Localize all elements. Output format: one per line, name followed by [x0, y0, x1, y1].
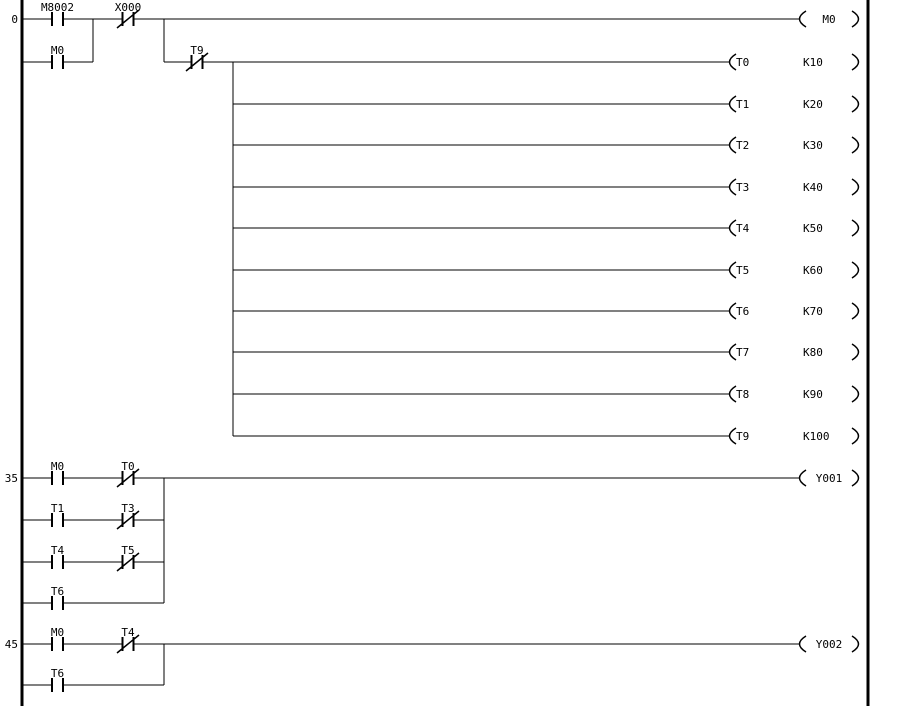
ladder-diagram-view: 0 35 45 M8002 X000 M0 [0, 0, 915, 706]
contact-label: T4 [51, 544, 65, 557]
contact-m0-rung35[interactable]: M0 [51, 460, 64, 485]
contact-label: T1 [51, 502, 64, 515]
contact-x000[interactable]: X000 [115, 1, 142, 28]
contact-t3[interactable]: T3 [117, 502, 139, 529]
coil-close-paren-icon [852, 137, 859, 153]
timer-preset: K30 [803, 139, 823, 152]
timer-preset: K10 [803, 56, 823, 69]
timer-preset: K90 [803, 388, 823, 401]
timer-preset: K80 [803, 346, 823, 359]
timer-coil-t9[interactable]: T9 K100 [730, 428, 859, 444]
coil-close-paren-icon [852, 344, 859, 360]
coil-label: M0 [822, 13, 835, 26]
contact-t6-rung45[interactable]: T6 [51, 667, 64, 692]
timer-name: T2 [736, 139, 749, 152]
contact-label: T4 [121, 626, 135, 639]
coil-close-paren-icon [852, 179, 859, 195]
timer-coil-t4[interactable]: T4 K50 [730, 220, 859, 236]
contact-label: M8002 [41, 1, 74, 14]
contact-m8002[interactable]: M8002 [41, 1, 74, 26]
coil-y001[interactable]: Y001 [800, 470, 859, 486]
coil-label: Y002 [816, 638, 843, 651]
timer-name: T5 [736, 264, 749, 277]
coil-open-paren-icon [800, 11, 807, 27]
coil-open-paren-icon [800, 470, 807, 486]
timer-name: T8 [736, 388, 749, 401]
contact-label: T3 [121, 502, 134, 515]
timer-name: T9 [736, 430, 749, 443]
rung-number-35: 35 [5, 472, 18, 485]
contact-gap [53, 641, 63, 647]
coil-close-paren-icon [852, 303, 859, 319]
coil-close-paren-icon [852, 470, 859, 486]
contact-t0[interactable]: T0 [117, 460, 139, 487]
coil-close-paren-icon [852, 428, 859, 444]
timer-coil-t1[interactable]: T1 K20 [730, 96, 859, 112]
rung-number-45: 45 [5, 638, 18, 651]
timer-name: T3 [736, 181, 749, 194]
timer-coil-t3[interactable]: T3 K40 [730, 179, 859, 195]
timer-coil-t2[interactable]: T2 K30 [730, 137, 859, 153]
timer-preset: K60 [803, 264, 823, 277]
rung-number-0: 0 [11, 13, 18, 26]
contact-gap [53, 682, 63, 688]
timer-preset: K50 [803, 222, 823, 235]
timer-coil-t8[interactable]: T8 K90 [730, 386, 859, 402]
timer-name: T7 [736, 346, 749, 359]
coil-close-paren-icon [852, 636, 859, 652]
coil-close-paren-icon [852, 386, 859, 402]
coil-close-paren-icon [852, 11, 859, 27]
contact-gap [53, 59, 63, 65]
ladder-diagram: 0 35 45 M8002 X000 M0 [0, 0, 915, 706]
timer-coil-t5[interactable]: T5 K60 [730, 262, 859, 278]
contact-t6-rung35[interactable]: T6 [51, 585, 64, 610]
contact-label: T0 [121, 460, 134, 473]
contact-gap [53, 600, 63, 606]
timer-name: T6 [736, 305, 749, 318]
contact-gap [53, 559, 63, 565]
timer-name: T0 [736, 56, 749, 69]
timer-preset: K40 [803, 181, 823, 194]
coil-close-paren-icon [852, 54, 859, 70]
contact-label: M0 [51, 44, 64, 57]
contact-label: T6 [51, 585, 64, 598]
contact-t1[interactable]: T1 [51, 502, 64, 527]
contact-t9[interactable]: T9 [186, 44, 208, 71]
contact-label: T5 [121, 544, 134, 557]
contact-m0-rung0[interactable]: M0 [51, 44, 64, 69]
timer-preset: K70 [803, 305, 823, 318]
contact-gap [53, 16, 63, 22]
timer-name: T4 [736, 222, 750, 235]
contact-t4-rung45[interactable]: T4 [117, 626, 139, 653]
contact-t4-rung35[interactable]: T4 [51, 544, 65, 569]
timer-coil-t0[interactable]: T0 K10 [730, 54, 859, 70]
timer-preset: K20 [803, 98, 823, 111]
timer-preset: K100 [803, 430, 830, 443]
coil-y002[interactable]: Y002 [800, 636, 859, 652]
coil-open-paren-icon [800, 636, 807, 652]
coil-close-paren-icon [852, 262, 859, 278]
coil-label: Y001 [816, 472, 843, 485]
contact-gap [53, 475, 63, 481]
contact-label: T9 [190, 44, 203, 57]
coil-m0[interactable]: M0 [800, 11, 859, 27]
coil-close-paren-icon [852, 220, 859, 236]
timer-coil-t7[interactable]: T7 K80 [730, 344, 859, 360]
contact-label: X000 [115, 1, 142, 14]
contact-label: T6 [51, 667, 64, 680]
timer-coil-t6[interactable]: T6 K70 [730, 303, 859, 319]
contact-label: M0 [51, 626, 64, 639]
contact-m0-rung45[interactable]: M0 [51, 626, 64, 651]
coil-close-paren-icon [852, 96, 859, 112]
contact-gap [53, 517, 63, 523]
timer-name: T1 [736, 98, 749, 111]
contact-t5[interactable]: T5 [117, 544, 139, 571]
contact-label: M0 [51, 460, 64, 473]
